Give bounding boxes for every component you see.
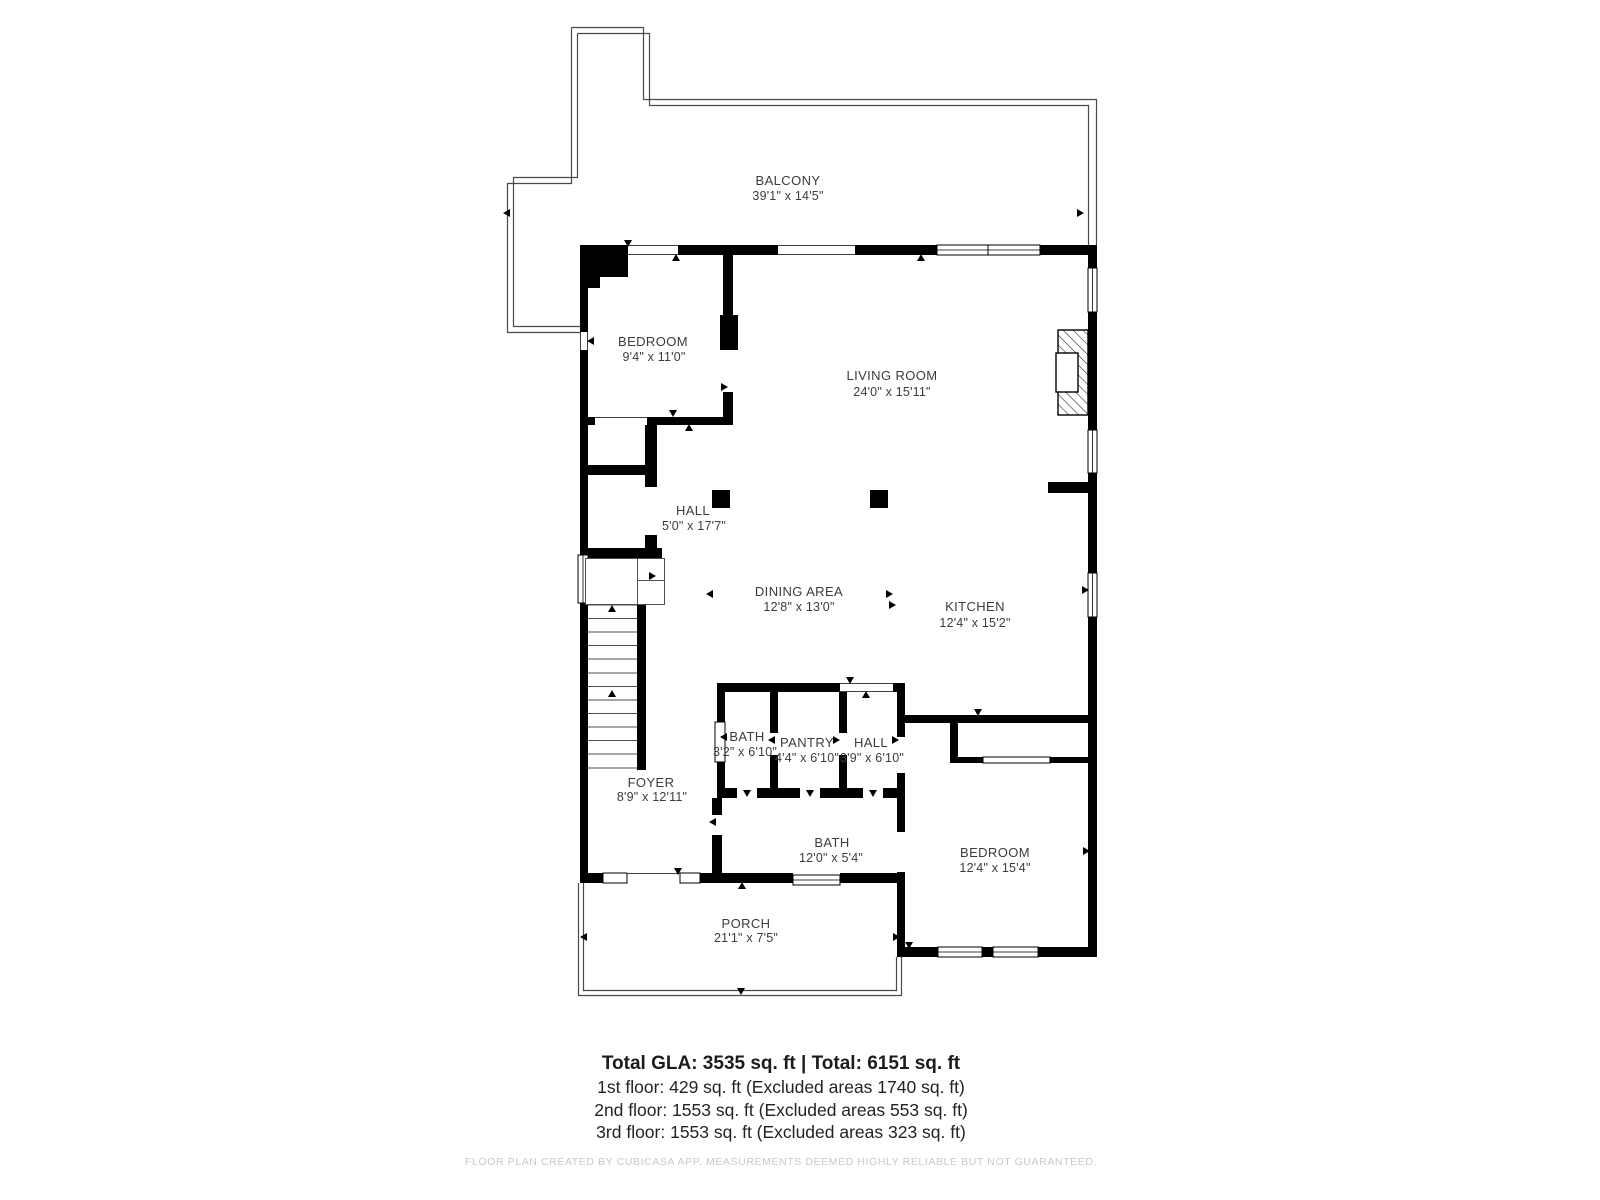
room-dims-balcony: 39'1" x 14'5"	[752, 189, 823, 203]
room-dims-hall-upper: 5'0" x 17'7"	[662, 519, 726, 533]
room-label-foyer: FOYER	[628, 775, 675, 790]
room-dims-hall-small: 3'9" x 6'10"	[840, 751, 904, 765]
room-label-hall-small: HALL	[854, 735, 888, 750]
summary-floor-1: 1st floor: 429 sq. ft (Excluded areas 17…	[0, 1076, 1581, 1099]
room-label-pantry: PANTRY	[780, 735, 834, 750]
room-label-bath-large: BATH	[814, 835, 849, 850]
room-dims-foyer: 8'9" x 12'11"	[617, 790, 687, 804]
summary-total: Total GLA: 3535 sq. ft | Total: 6151 sq.…	[0, 1052, 1581, 1076]
staircase	[586, 559, 665, 769]
room-dims-pantry: 4'4" x 6'10"	[775, 751, 839, 765]
room-label-bath-small: BATH	[729, 729, 764, 744]
room-label-porch: PORCH	[722, 916, 771, 931]
room-label-hall-upper: HALL	[676, 503, 710, 518]
room-label-kitchen: KITCHEN	[945, 599, 1005, 614]
disclaimer-text: FLOOR PLAN CREATED BY CUBICASA APP. MEAS…	[0, 1156, 1581, 1168]
room-dims-bedroom-upper: 9'4" x 11'0"	[622, 350, 685, 364]
summary-floor-2: 2nd floor: 1553 sq. ft (Excluded areas 5…	[0, 1099, 1581, 1122]
room-dims-porch: 21'1" x 7'5"	[714, 931, 778, 945]
room-dims-living-room: 24'0" x 15'11"	[853, 385, 930, 399]
room-dims-bath-large: 12'0" x 5'4"	[799, 851, 863, 865]
room-dims-bath-small: 3'2" x 6'10"	[713, 745, 777, 759]
room-label-living-room: LIVING ROOM	[846, 368, 937, 383]
room-dims-bedroom-lower: 12'4" x 15'4"	[959, 861, 1030, 875]
room-label-bedroom-upper: BEDROOM	[618, 334, 688, 349]
room-label-balcony: BALCONY	[756, 173, 821, 188]
room-dims-dining-area: 12'8" x 13'0"	[763, 600, 834, 614]
summary-floor-3: 3rd floor: 1553 sq. ft (Excluded areas 3…	[0, 1121, 1581, 1144]
room-label-dining-area: DINING AREA	[755, 584, 843, 599]
area-summary: Total GLA: 3535 sq. ft | Total: 6151 sq.…	[0, 1052, 1581, 1144]
room-label-bedroom-lower: BEDROOM	[960, 845, 1030, 860]
room-labels: BALCONY 39'1" x 14'5" BEDROOM 9'4" x 11'…	[617, 173, 1031, 945]
fireplace	[1056, 330, 1088, 415]
floor-plan: BALCONY 39'1" x 14'5" BEDROOM 9'4" x 11'…	[0, 0, 1600, 1200]
room-dims-kitchen: 12'4" x 15'2"	[939, 616, 1010, 630]
